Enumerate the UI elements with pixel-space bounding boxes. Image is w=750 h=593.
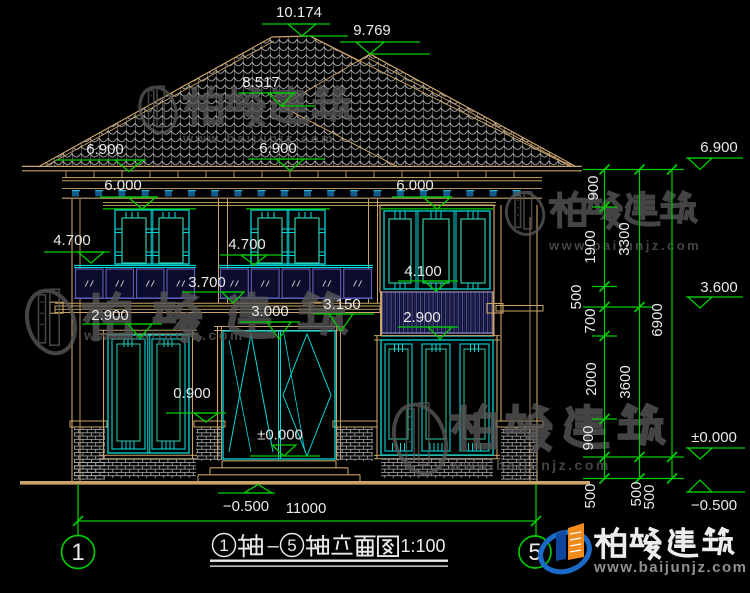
svg-text:www.baijunjz.com: www.baijunjz.com [593,559,747,576]
svg-text:0.900: 0.900 [173,385,211,402]
svg-text:6.900: 6.900 [700,139,738,156]
svg-text:9.769: 9.769 [353,22,391,39]
svg-text:2.900: 2.900 [403,309,441,326]
svg-text:3.150: 3.150 [323,296,361,313]
svg-text:3.700: 3.700 [188,274,226,291]
svg-text:±0.000: ±0.000 [691,429,737,446]
svg-text:www.baijunjz.com: www.baijunjz.com [83,327,245,343]
svg-text:6.900: 6.900 [259,140,297,157]
svg-text:6.000: 6.000 [396,177,434,194]
svg-text:11000: 11000 [286,500,327,517]
svg-text:3.600: 3.600 [700,279,738,296]
svg-text:–: – [267,535,279,557]
svg-text:1: 1 [219,536,228,555]
svg-text:700: 700 [582,308,599,333]
svg-text:10.174: 10.174 [276,4,322,21]
svg-text:500: 500 [641,484,658,509]
svg-text:−0.500: −0.500 [223,498,269,515]
svg-text:2.900: 2.900 [91,307,129,324]
svg-text:2000: 2000 [583,362,600,395]
svg-text:4.100: 4.100 [404,263,442,280]
svg-text:900: 900 [580,425,597,450]
svg-text:−0.500: −0.500 [691,497,737,514]
svg-text:3300: 3300 [616,222,633,255]
svg-text:6.000: 6.000 [104,177,142,194]
svg-text:±0.000: ±0.000 [257,427,303,444]
svg-text:900: 900 [585,175,602,200]
svg-text:500: 500 [568,284,585,309]
svg-text:4.700: 4.700 [53,232,91,249]
svg-text:5: 5 [287,536,296,555]
svg-text:3.000: 3.000 [251,303,289,320]
svg-text:500: 500 [582,483,599,508]
svg-text:1:100: 1:100 [400,536,445,556]
svg-text:6.900: 6.900 [86,141,124,158]
svg-text:1900: 1900 [582,230,599,263]
svg-text:www.baijunjz.com: www.baijunjz.com [449,457,611,473]
svg-text:1: 1 [71,539,84,566]
svg-text:6900: 6900 [649,303,666,336]
svg-text:4.700: 4.700 [228,236,266,253]
svg-text:3600: 3600 [617,365,634,398]
svg-text:8.517: 8.517 [242,74,280,91]
